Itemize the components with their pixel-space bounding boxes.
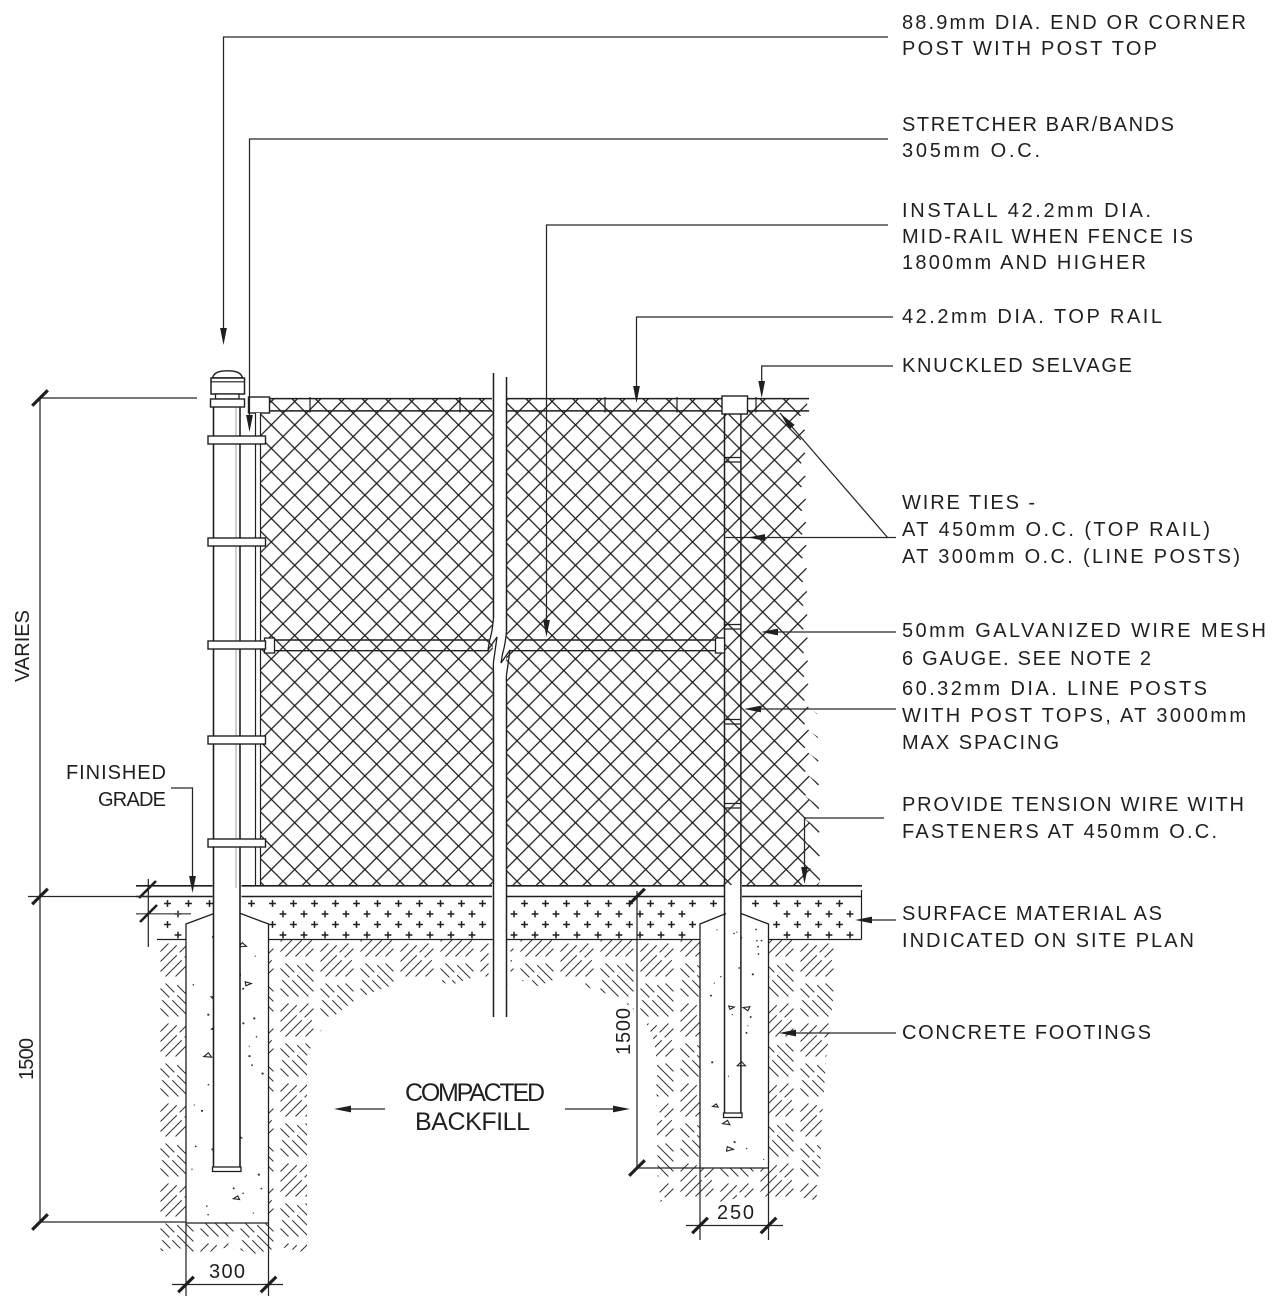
svg-text:6 GAUGE. SEE NOTE 2: 6 GAUGE. SEE NOTE 2: [902, 648, 1151, 670]
svg-text:1500: 1500: [613, 1008, 635, 1055]
svg-text:POST WITH POST TOP: POST WITH POST TOP: [902, 38, 1157, 60]
svg-text:SURFACE MATERIAL AS: SURFACE MATERIAL AS: [902, 903, 1162, 925]
svg-text:VARIES: VARIES: [12, 610, 34, 682]
svg-text:1500: 1500: [16, 1038, 38, 1080]
svg-text:250: 250: [717, 1202, 754, 1224]
svg-text:50mm GALVANIZED WIRE MESH: 50mm GALVANIZED WIRE MESH: [902, 620, 1266, 642]
svg-text:MAX SPACING: MAX SPACING: [902, 732, 1059, 754]
svg-text:42.2mm DIA. TOP RAIL: 42.2mm DIA. TOP RAIL: [902, 306, 1162, 328]
svg-text:GRADE: GRADE: [98, 789, 166, 811]
svg-text:INDICATED ON SITE PLAN: INDICATED ON SITE PLAN: [902, 930, 1194, 952]
svg-text:FINISHED: FINISHED: [66, 762, 166, 784]
svg-text:1800mm AND HIGHER: 1800mm AND HIGHER: [902, 252, 1146, 274]
svg-text:STRETCHER BAR/BANDS: STRETCHER BAR/BANDS: [902, 114, 1174, 136]
svg-text:300: 300: [209, 1261, 245, 1283]
svg-text:305mm O.C.: 305mm O.C.: [902, 140, 1040, 162]
svg-text:WIRE TIES -: WIRE TIES -: [902, 492, 1035, 514]
svg-text:88.9mm DIA. END OR CORNER: 88.9mm DIA. END OR CORNER: [902, 12, 1246, 34]
svg-text:KNUCKLED SELVAGE: KNUCKLED SELVAGE: [902, 355, 1132, 377]
svg-text:INSTALL 42.2mm DIA.: INSTALL 42.2mm DIA.: [902, 200, 1151, 222]
svg-text:WITH POST TOPS, AT 3000mm: WITH POST TOPS, AT 3000mm: [902, 705, 1246, 727]
svg-text:BACKFILL: BACKFILL: [415, 1108, 530, 1136]
svg-text:PROVIDE TENSION WIRE WITH: PROVIDE TENSION WIRE WITH: [902, 794, 1244, 816]
svg-text:COMPACTED: COMPACTED: [405, 1079, 545, 1107]
svg-text:AT 300mm O.C. (LINE POSTS): AT 300mm O.C. (LINE POSTS): [902, 546, 1240, 568]
